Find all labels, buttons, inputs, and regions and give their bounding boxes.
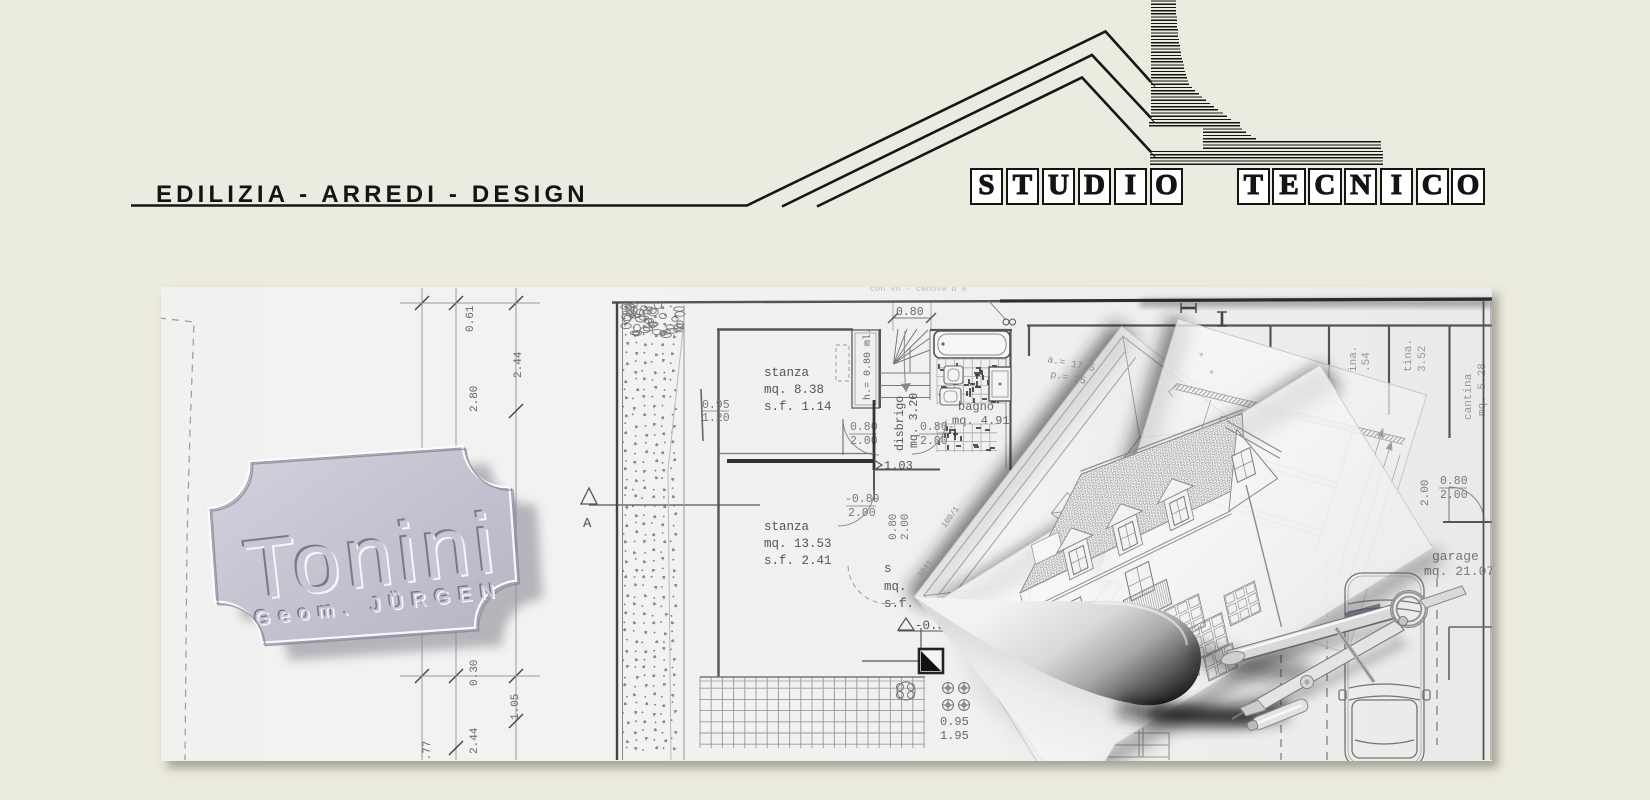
svg-text:disbrigo: disbrigo: [894, 396, 907, 451]
svg-text:stanza: stanza: [764, 366, 810, 380]
svg-text:bagno: bagno: [958, 400, 994, 414]
svg-text:0.95: 0.95: [702, 399, 730, 412]
svg-text:.54: .54: [1361, 352, 1373, 372]
svg-text:1.05: 1.05: [510, 694, 522, 720]
svg-text:mq. 13.53: mq. 13.53: [764, 537, 832, 551]
svg-text:0.61: 0.61: [465, 305, 477, 332]
svg-text:2.00: 2.00: [900, 514, 912, 540]
svg-text:1.03: 1.03: [884, 459, 913, 473]
svg-text:0.80: 0.80: [896, 306, 924, 319]
svg-text:tina.: tina.: [1403, 339, 1415, 372]
svg-text:s.f. 1.14: s.f. 1.14: [764, 400, 832, 414]
svg-text:-0.89: -0.89: [845, 493, 880, 506]
svg-text:2.44: 2.44: [513, 351, 525, 378]
svg-text:2.00: 2.00: [1440, 489, 1468, 502]
svg-text:3.52: 3.52: [1417, 346, 1429, 372]
svg-text:A: A: [583, 516, 592, 532]
svg-text:s: s: [884, 562, 892, 576]
svg-text:2.00: 2.00: [848, 507, 876, 520]
svg-text:2.80: 2.80: [469, 386, 481, 412]
svg-text:2.00: 2.00: [1420, 480, 1432, 506]
svg-text:mq.: mq.: [884, 580, 907, 594]
svg-text:0.80: 0.80: [1440, 475, 1468, 488]
svg-text:h.= 0.80 ml.: h.= 0.80 ml.: [862, 328, 874, 400]
svg-text:s.f.: s.f.: [884, 597, 914, 611]
svg-text:mq. 8.38: mq. 8.38: [764, 383, 824, 397]
svg-text:0.95: 0.95: [940, 715, 969, 729]
svg-text:1.95: 1.95: [940, 729, 969, 743]
svg-text:0.80-: 0.80-: [920, 421, 955, 434]
svg-text:1.20: 1.20: [702, 412, 730, 425]
svg-text:2.77: 2.77: [422, 741, 434, 761]
svg-text:cantina: cantina: [1463, 373, 1475, 420]
svg-text:2.00: 2.00: [920, 435, 948, 448]
svg-text:s.f. 2.41: s.f. 2.41: [764, 554, 832, 568]
svg-text:stanza: stanza: [764, 520, 810, 534]
svg-text:0.30: 0.30: [469, 660, 481, 686]
svg-text:2.44: 2.44: [469, 727, 481, 754]
svg-text:ina.: ina.: [1348, 346, 1360, 372]
svg-text:con vo - cenova d e: con vo - cenova d e: [870, 287, 967, 294]
svg-text:0.80: 0.80: [888, 514, 900, 540]
